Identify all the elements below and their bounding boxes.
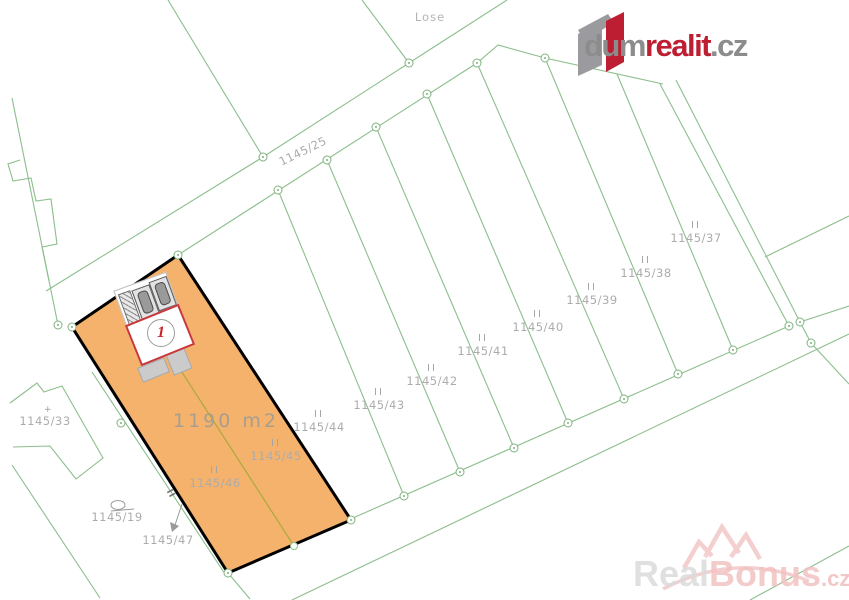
parcel-number: 1145/19 (72, 511, 162, 524)
parcel-number: 1145/38 (601, 267, 691, 280)
parcel-number: 1145/37 (651, 232, 741, 245)
parcel-33-outline (10, 383, 103, 479)
car-shape (154, 281, 172, 306)
logo-part-dum: dum (584, 28, 645, 63)
west-boundary (12, 98, 58, 325)
dumrealit-logo-text: dumrealit.cz (584, 28, 747, 64)
listing-marker-number: 1 (157, 324, 165, 342)
parcel-number: 1145/39 (547, 294, 637, 307)
street-label: Lose (395, 10, 465, 24)
watermark-part-bonus: Bonus (709, 553, 821, 595)
west-buildings-outline (8, 160, 57, 281)
logo-part-realit: realit (645, 28, 710, 63)
parcel-number: 1145/45 (231, 450, 321, 463)
parcel-label-1145-41: II1145/41 (438, 332, 528, 358)
parcel-number: 1145/33 (0, 415, 90, 428)
lane-edge-left (660, 84, 789, 326)
parcel-label-1145-44: II1145/44 (274, 408, 364, 434)
watermark-part-real: Real (633, 553, 709, 595)
north-divider-1 (168, 0, 263, 157)
parcel-label-1145-33: 1145/33 (0, 415, 90, 428)
parcel-label-1145-46: II1145/46 (170, 464, 260, 490)
parcel-number: 1145/46 (170, 477, 260, 490)
parcel-label-1145-38: II1145/38 (601, 254, 691, 280)
cadastral-map-view: Lose 1145/25 1190 m2 II + 1 II1145/37II1… (0, 0, 849, 600)
listing-marker-circle[interactable]: 1 (147, 319, 175, 347)
southwest-road-edge (12, 465, 100, 598)
parcel-label-1145-42: II1145/42 (387, 362, 477, 388)
parcel-label-1145-19: 1145/19 (72, 511, 162, 524)
logo-part-cz: .cz (710, 28, 747, 63)
divider-37-38 (617, 74, 733, 350)
lane-edge-right (676, 80, 800, 322)
parcel-number: 1145/41 (438, 345, 528, 358)
northeast-corner-line-2 (800, 306, 849, 322)
parcel-label-1145-45: II1145/45 (231, 437, 321, 463)
realbonus-watermark: RealBonus.cz (633, 553, 849, 595)
south-corner-tail (228, 573, 250, 599)
watermark-part-cz: .cz (821, 566, 849, 592)
parcel-number: 1145/47 (123, 534, 213, 547)
northeast-corner-line-1 (765, 216, 849, 257)
road-upper-edge (46, 0, 507, 291)
parcel-label-1145-37: II1145/37 (651, 219, 741, 245)
parcel-label-1145-40: II1145/40 (493, 308, 583, 334)
dumrealit-logo: dumrealit.cz (576, 10, 747, 64)
east-boundary-tail (811, 343, 849, 384)
parcel-label-1145-39: II1145/39 (547, 281, 637, 307)
parcel-number: 1145/44 (274, 421, 364, 434)
parcel-label-1145-47: 1145/47 (123, 534, 213, 547)
parcel-47-arrow (170, 504, 182, 532)
